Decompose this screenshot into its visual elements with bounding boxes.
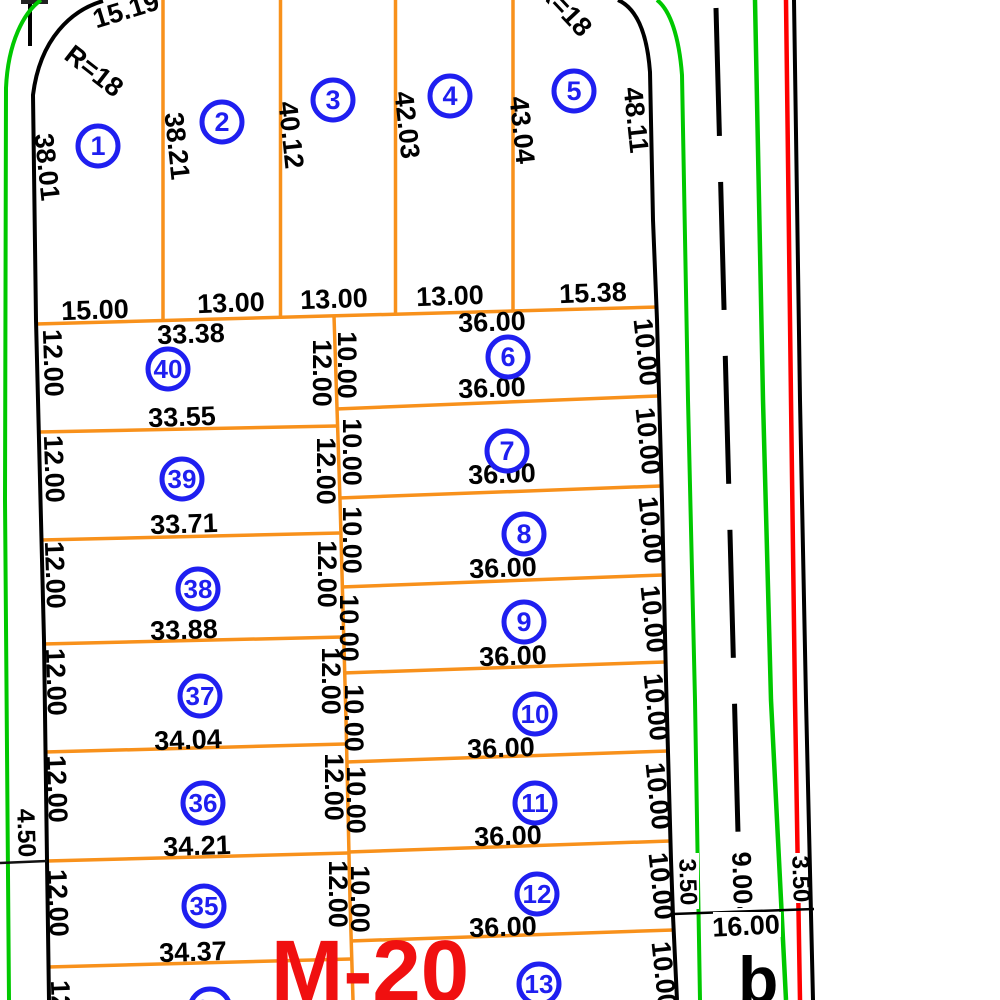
svg-text:10.00: 10.00	[635, 584, 672, 654]
svg-text:15.00: 15.00	[61, 294, 130, 326]
svg-text:37: 37	[186, 681, 215, 711]
svg-text:10.00: 10.00	[630, 406, 667, 476]
svg-text:10.00: 10.00	[646, 940, 683, 1000]
svg-text:M-20: M-20	[271, 923, 469, 1000]
svg-text:36.00: 36.00	[469, 552, 538, 584]
svg-text:36.00: 36.00	[469, 911, 538, 943]
svg-text:12.00: 12.00	[40, 648, 72, 717]
svg-text:3: 3	[325, 85, 340, 115]
svg-text:34.37: 34.37	[159, 936, 228, 968]
svg-text:12.00: 12.00	[45, 980, 77, 1000]
svg-text:15.38: 15.38	[559, 277, 628, 309]
svg-text:39: 39	[168, 464, 197, 494]
svg-text:12.00: 12.00	[38, 435, 70, 504]
svg-text:38: 38	[184, 574, 213, 604]
svg-text:34.04: 34.04	[154, 724, 223, 756]
svg-text:12.00: 12.00	[39, 541, 71, 610]
svg-text:48.11: 48.11	[618, 86, 655, 155]
svg-text:10: 10	[521, 699, 550, 729]
svg-text:12.00: 12.00	[37, 329, 69, 398]
svg-text:12.00: 12.00	[41, 755, 73, 824]
svg-text:43.04: 43.04	[504, 95, 541, 165]
svg-text:1: 1	[90, 131, 105, 161]
svg-text:33.88: 33.88	[150, 614, 219, 646]
svg-text:b: b	[738, 943, 778, 1000]
svg-text:34.21: 34.21	[163, 830, 232, 862]
svg-text:10.00: 10.00	[638, 672, 675, 742]
svg-text:R=18: R=18	[531, 0, 597, 42]
svg-text:40: 40	[154, 354, 183, 384]
svg-text:35: 35	[190, 891, 219, 921]
svg-text:10.00: 10.00	[337, 506, 367, 574]
svg-text:4.50: 4.50	[11, 808, 41, 858]
svg-text:5: 5	[566, 76, 581, 106]
svg-text:36.00: 36.00	[479, 640, 548, 672]
svg-text:10.00: 10.00	[334, 594, 364, 662]
svg-text:36.00: 36.00	[458, 306, 527, 338]
svg-text:8: 8	[516, 519, 531, 549]
svg-text:40.12: 40.12	[273, 100, 310, 170]
svg-text:34: 34	[196, 994, 225, 1000]
svg-text:13.00: 13.00	[197, 287, 266, 319]
svg-text:3.50: 3.50	[673, 858, 702, 906]
svg-text:13.00: 13.00	[300, 283, 369, 315]
svg-text:10.00: 10.00	[640, 761, 677, 831]
svg-text:10.00: 10.00	[332, 331, 362, 399]
svg-text:12: 12	[523, 879, 552, 909]
svg-text:R=18: R=18	[59, 39, 129, 103]
svg-text:36.00: 36.00	[467, 732, 536, 764]
svg-text:4: 4	[442, 81, 457, 111]
svg-text:15.19: 15.19	[89, 0, 162, 34]
svg-text:10.00: 10.00	[337, 418, 367, 486]
svg-text:2: 2	[214, 107, 229, 137]
svg-text:33.38: 33.38	[157, 318, 226, 350]
svg-text:11: 11	[521, 788, 549, 818]
svg-text:10.00: 10.00	[628, 317, 665, 387]
svg-text:16.00: 16.00	[711, 909, 780, 942]
svg-text:7: 7	[499, 436, 514, 466]
svg-text:10.00: 10.00	[339, 684, 369, 752]
svg-text:12.00: 12.00	[42, 869, 74, 938]
svg-text:3.50: 3.50	[786, 855, 815, 903]
svg-text:6: 6	[500, 342, 515, 372]
svg-text:33.55: 33.55	[148, 401, 217, 433]
svg-text:10.00: 10.00	[341, 766, 371, 834]
svg-text:36: 36	[189, 788, 218, 818]
svg-text:13: 13	[525, 969, 554, 999]
svg-text:9.00: 9.00	[726, 851, 758, 905]
svg-text:12.00: 12.00	[311, 437, 341, 505]
svg-text:9: 9	[516, 607, 531, 637]
svg-text:33.71: 33.71	[150, 508, 219, 540]
svg-text:10.00: 10.00	[633, 495, 670, 565]
